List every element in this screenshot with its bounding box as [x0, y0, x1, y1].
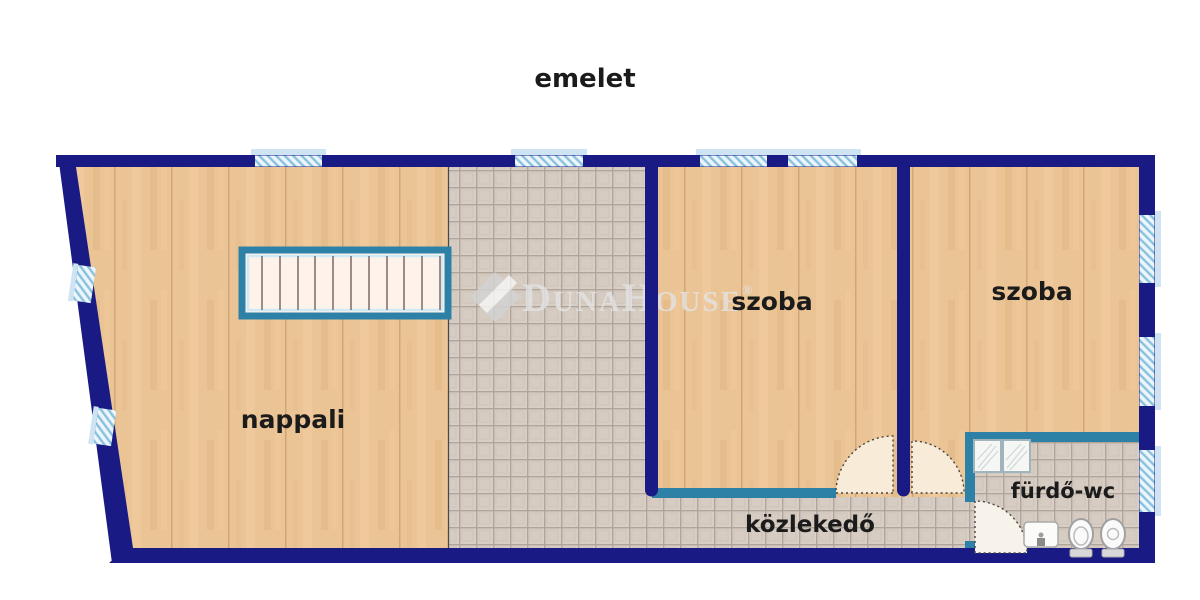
window-sill: [251, 149, 326, 155]
floors: [66, 160, 1145, 552]
room2-label: szoba: [991, 277, 1072, 306]
window-top-2: [515, 156, 583, 167]
watermark-ouse: OUSE: [655, 286, 742, 318]
window-sill: [696, 149, 861, 155]
bathroom-label: fürdő-wc: [1011, 479, 1115, 503]
window-right-3: [1140, 450, 1155, 512]
top-wall: [56, 155, 1155, 167]
window-right-2: [1140, 337, 1155, 406]
sink-icon: [1024, 522, 1058, 547]
living-room-label: nappali: [241, 405, 345, 434]
watermark-una: UNA: [553, 286, 622, 318]
window-top-4: [788, 156, 857, 167]
window-sill: [1155, 446, 1161, 516]
shower-tray-icon: [1003, 440, 1030, 472]
toilet-icon: [1069, 519, 1093, 557]
hallway-label: közlekedő: [745, 512, 875, 538]
window-sill: [1155, 211, 1161, 287]
window-sill: [511, 149, 587, 155]
window-right-1: [1140, 215, 1155, 283]
window-sill: [1155, 333, 1161, 410]
floor-plan-page: DUNAHOUSE®: [0, 0, 1200, 600]
staircase-outline: [242, 250, 448, 316]
page-title: emelet: [534, 64, 635, 94]
room1-partition-wall: [652, 488, 836, 498]
room1-label: szoba: [731, 287, 812, 316]
floor-plan-drawing: DUNAHOUSE®: [0, 0, 1200, 600]
staircase: [242, 250, 448, 316]
shower-tray-icon: [974, 440, 1001, 472]
window-top-1: [255, 156, 322, 167]
bidet-icon: [1101, 519, 1125, 557]
window-top-3: [700, 156, 767, 167]
watermark-d: D: [522, 275, 553, 320]
